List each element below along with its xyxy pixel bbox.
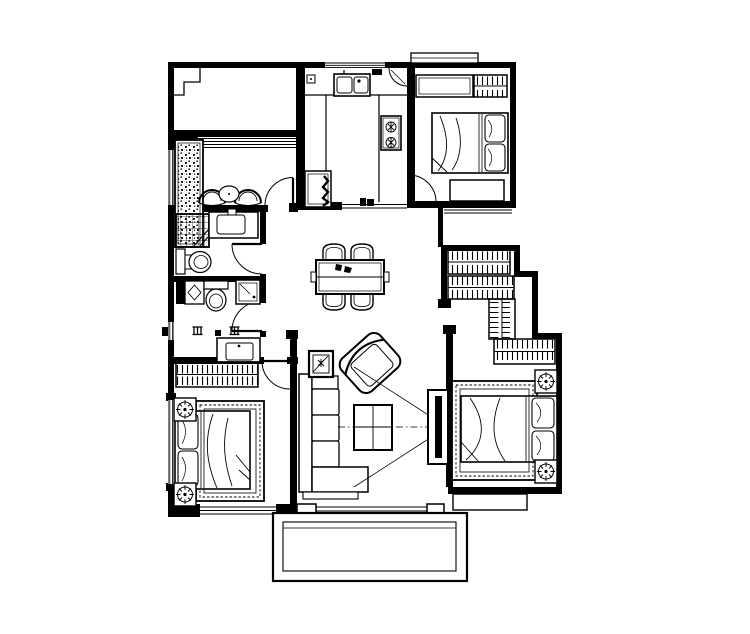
toilet <box>204 281 228 311</box>
faucet <box>228 209 236 215</box>
double-bed <box>175 411 250 489</box>
coffee-table <box>354 405 392 450</box>
nightstand-lamp <box>174 398 196 421</box>
double-bed <box>461 396 557 462</box>
vanity-nook-furniture <box>217 338 260 362</box>
single-bed <box>432 113 508 173</box>
nightstand-lamp <box>535 460 557 483</box>
floor-plan-canvas <box>0 0 750 634</box>
plant-side-table <box>309 351 333 377</box>
kitchen-small-appliance <box>360 198 366 206</box>
vanity-basin <box>217 338 260 362</box>
floor-plan-drawing <box>0 0 750 634</box>
nightstand-lamp <box>535 370 557 393</box>
bottom-balcony <box>273 513 467 581</box>
desk <box>450 180 504 201</box>
tv-panel <box>428 390 448 464</box>
bedroom-bottom-left-furniture <box>174 362 264 506</box>
washer-dark-panel <box>176 281 185 304</box>
nightstand-lamp <box>174 483 196 506</box>
exterior-step <box>453 494 527 510</box>
